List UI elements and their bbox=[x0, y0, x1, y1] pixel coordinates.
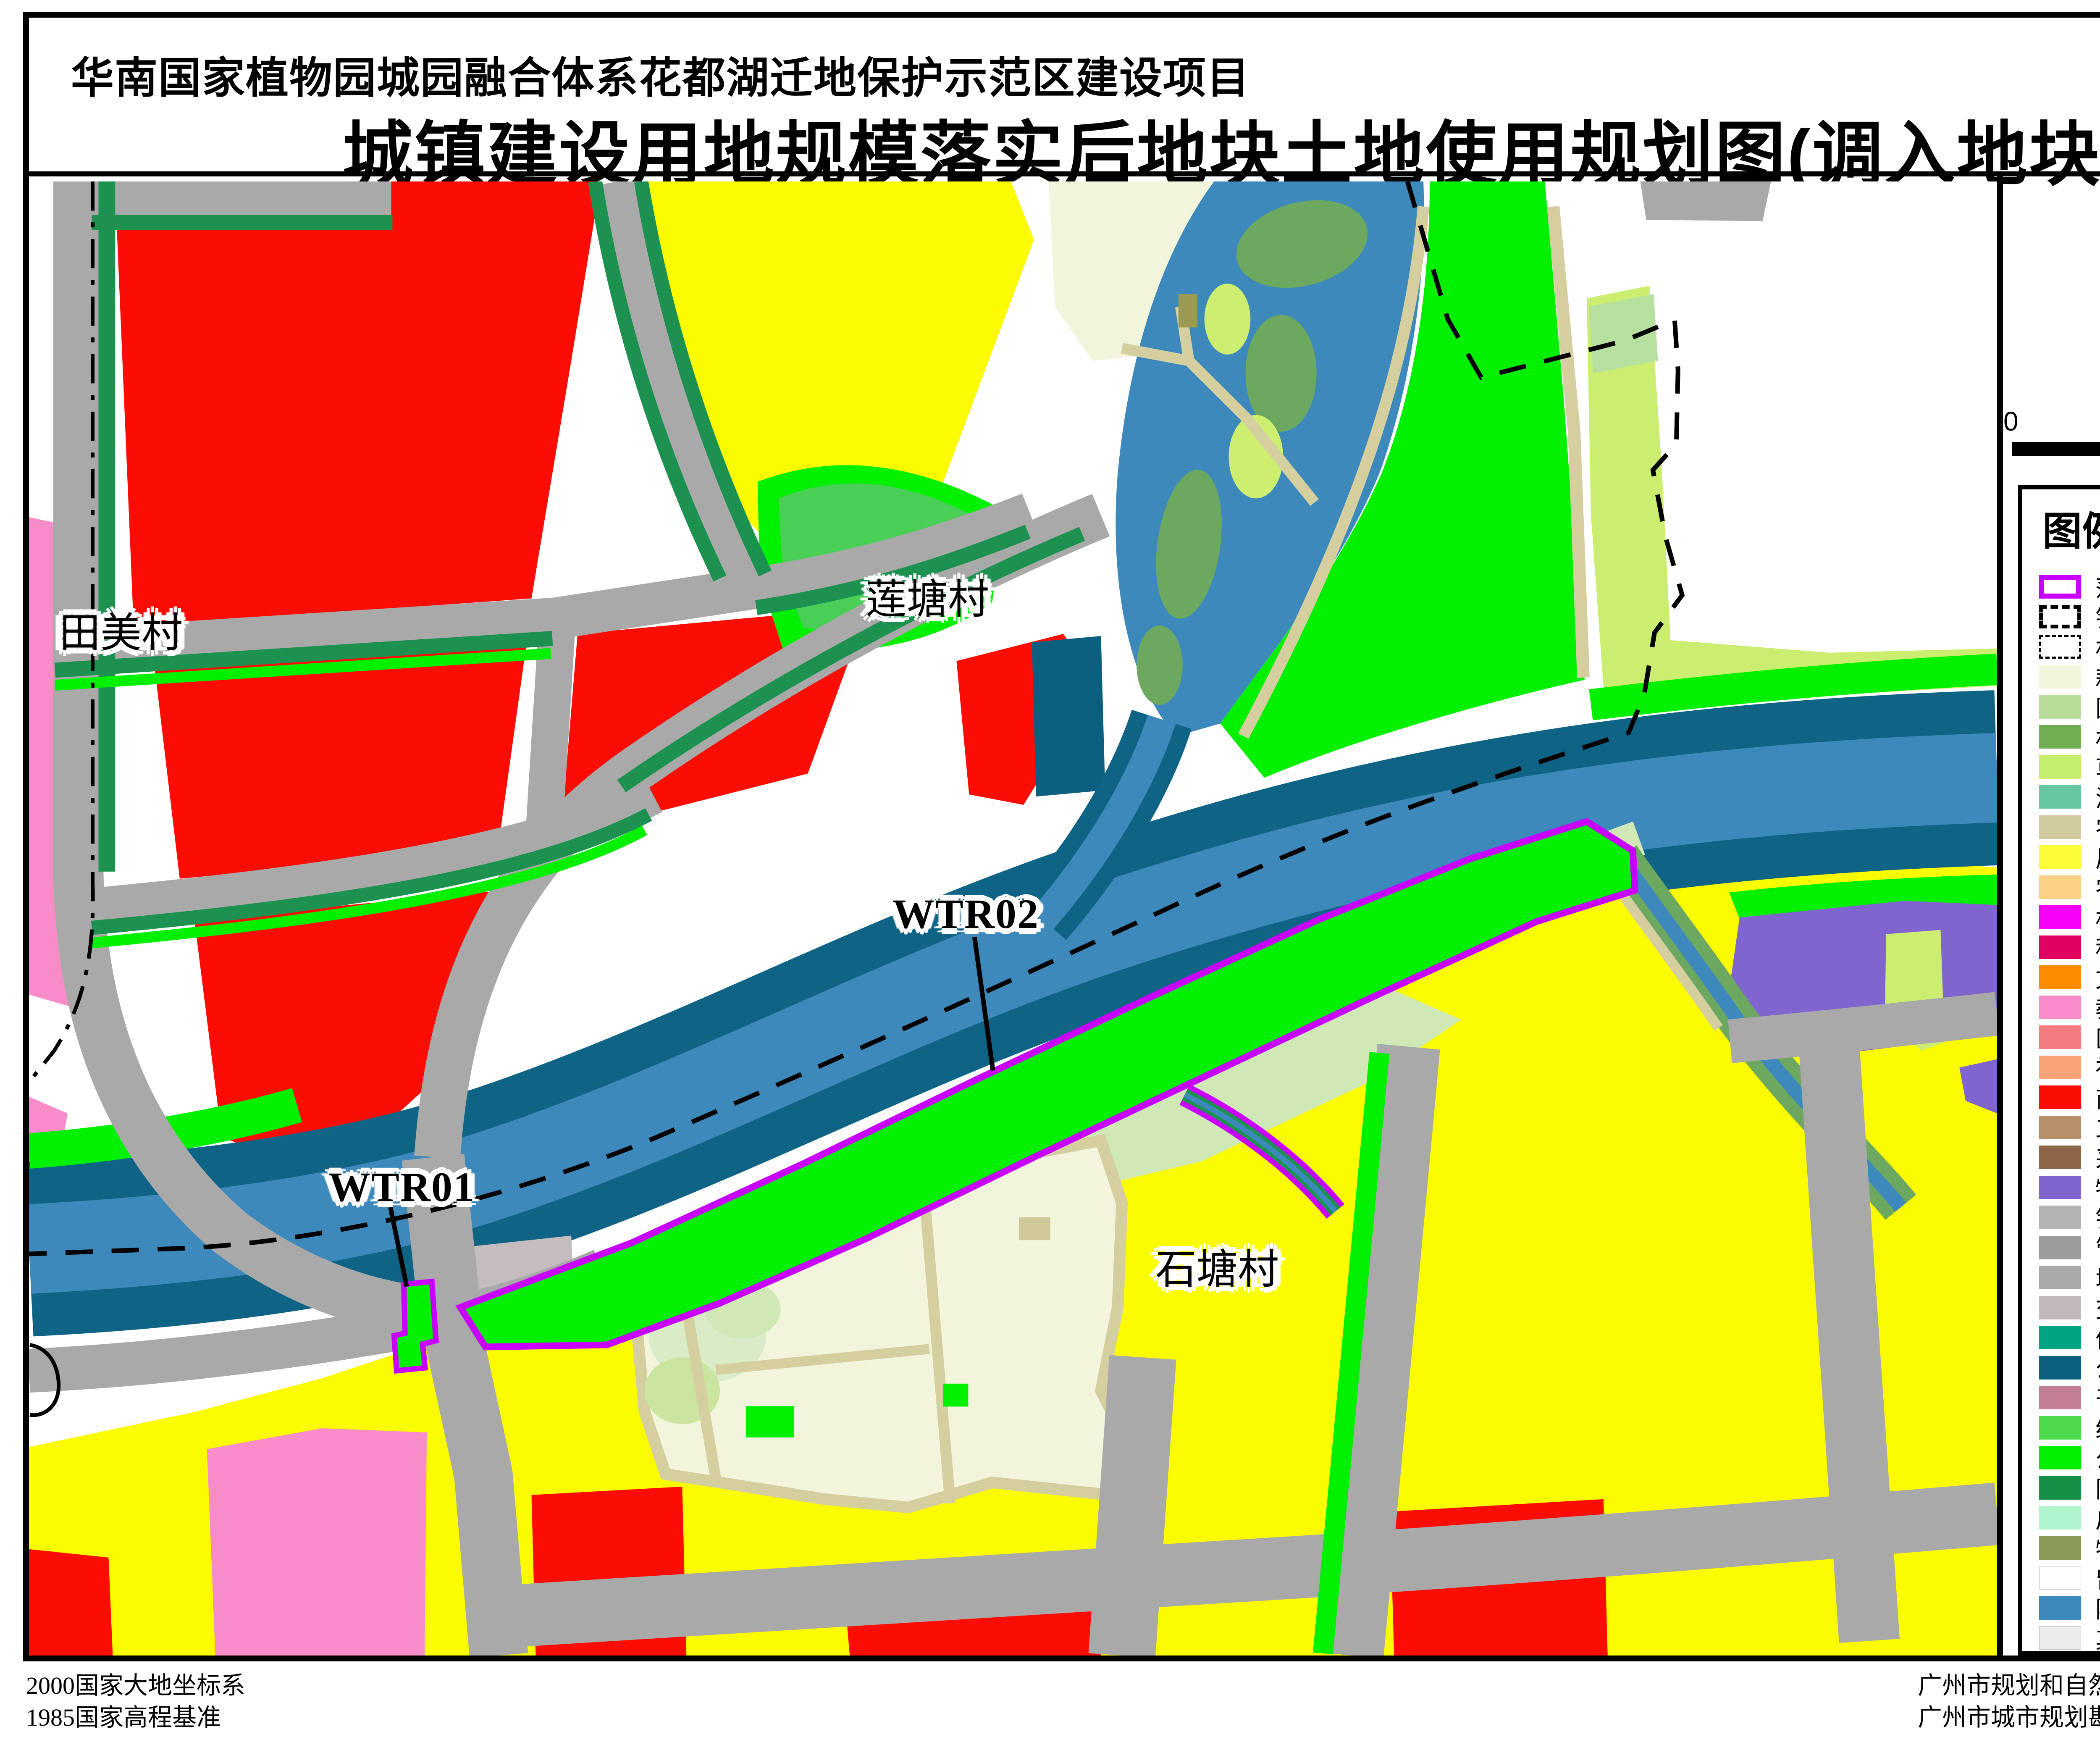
legend-swatch-fill bbox=[2039, 1266, 2081, 1289]
legend-item-label: 公用设施用地 bbox=[2095, 1351, 2100, 1385]
legend-item: 交通场站及其他交通用地 bbox=[2022, 1293, 2100, 1323]
legend-item: 文化用地 bbox=[2022, 962, 2100, 993]
legend-item-label: 文化用地 bbox=[2095, 960, 2100, 994]
legend-item-label: 特殊用地 bbox=[2095, 1531, 2100, 1565]
footer-bureau: 广州市规划和自然资源局花都区分局 bbox=[1918, 1670, 2100, 1702]
legend-item-label: 科研用地 bbox=[2095, 930, 2100, 964]
legend-swatch-fill bbox=[2039, 1356, 2081, 1380]
legend-item: 留白用地 bbox=[2022, 1563, 2100, 1593]
legend-item-label: 林地 bbox=[2095, 720, 2100, 754]
legend-item: 机关团体用地 bbox=[2022, 902, 2100, 933]
legend-item-label: 社会福利用地 bbox=[2095, 1050, 2100, 1084]
project-name: 华南国家植物园城园融合体系花都湖迁地保护示范区建设项目 bbox=[71, 44, 1250, 105]
legend-item-label: 防护绿地 bbox=[2095, 1471, 2100, 1505]
legend-item-label: 体育用地 bbox=[2095, 1321, 2100, 1355]
legend-item: 绿地与开敞空间用地 bbox=[2022, 1413, 2100, 1443]
label-liantang-village: 莲塘村 bbox=[866, 566, 989, 625]
legend-title: 图例 bbox=[2042, 499, 2100, 557]
legend-swatch-fill bbox=[2039, 845, 2081, 869]
legend-swatch-fill bbox=[2039, 1025, 2081, 1049]
legend-item: 公用设施用地 bbox=[2022, 1353, 2100, 1383]
legend-item: 农村宅基地 bbox=[2022, 872, 2100, 902]
legend-swatch-fill bbox=[2039, 1085, 2081, 1109]
legend-item: 物流仓储用地 bbox=[2022, 1172, 2100, 1203]
legend-item-label: 村界 bbox=[2095, 630, 2100, 664]
legend-item-label: 草地 bbox=[2095, 750, 2100, 784]
legend-item-label: 耕地 bbox=[2095, 660, 2100, 694]
scale-tick-0: 0 bbox=[2003, 406, 2019, 437]
legend-items: 落实地块镇界村界耕地园地林地草地湿地农业设施建设用地居住用地农村宅基地机关团体用… bbox=[2022, 572, 2100, 1653]
legend-item-label: 园地 bbox=[2095, 690, 2100, 724]
legend-swatch-dash-thin bbox=[2039, 635, 2081, 659]
legend-item-label: 陆地水域 bbox=[2095, 1591, 2100, 1625]
legend-item-label: 留白用地 bbox=[2095, 1561, 2100, 1595]
label-tianmei-village: 田美村 bbox=[59, 599, 183, 659]
legend-item: 农业设施建设用地 bbox=[2022, 812, 2100, 842]
legend-item: 工业用地 bbox=[2022, 1112, 2100, 1143]
legend-item: 湿地 bbox=[2022, 782, 2100, 812]
legend-item: 铁路、公路、机场、港口码头用地 bbox=[2022, 1203, 2100, 1233]
legend-item-label: 采矿用地 bbox=[2095, 1140, 2100, 1175]
legend-item: 草地 bbox=[2022, 752, 2100, 782]
footer-height-datum: 1985国家高程基准 bbox=[26, 1702, 245, 1734]
legend-swatch-fill bbox=[2039, 1566, 2081, 1590]
road-stub-north bbox=[1641, 181, 1771, 221]
footer-attribution: 广州市规划和自然资源局花都区分局 广州市城市规划勘测设计研究院花都分院 制图 bbox=[1918, 1670, 2100, 1734]
legend-item: 镇界 bbox=[2022, 602, 2100, 632]
legend-item-label: 城镇道路用地 bbox=[2095, 1261, 2100, 1295]
legend-swatch-fill bbox=[2039, 1116, 2081, 1139]
legend-swatch-outline bbox=[2039, 575, 2081, 599]
legend-swatch-dash-bold bbox=[2039, 605, 2081, 628]
legend-swatch-fill bbox=[2039, 1626, 2081, 1650]
legend-swatch-fill bbox=[2039, 965, 2081, 989]
legend-swatch-fill bbox=[2039, 1206, 2081, 1229]
legend-swatch-fill bbox=[2039, 725, 2081, 749]
legend-item-label: 落实地块 bbox=[2095, 570, 2100, 604]
legend-item: 林地 bbox=[2022, 722, 2100, 752]
legend-swatch-fill bbox=[2039, 1176, 2081, 1199]
legend-item-label: 广场用地 bbox=[2095, 1501, 2100, 1535]
legend-swatch-fill bbox=[2039, 905, 2081, 929]
legend-item: 陆地水域 bbox=[2022, 1593, 2100, 1623]
legend-swatch-fill bbox=[2039, 1536, 2081, 1560]
legend-swatch-fill bbox=[2039, 1506, 2081, 1529]
legend-swatch-fill bbox=[2039, 815, 2081, 839]
legend-item: 其他土地 bbox=[2022, 1623, 2100, 1653]
footer-coordinate-system: 2000国家大地坐标系 bbox=[26, 1670, 245, 1702]
legend-swatch-fill bbox=[2039, 755, 2081, 779]
legend-swatch-fill bbox=[2039, 1056, 2081, 1079]
legend-swatch-fill bbox=[2039, 1386, 2081, 1409]
legend-item: 商业服务业用地 bbox=[2022, 1083, 2100, 1113]
legend-item: 特殊用地 bbox=[2022, 1533, 2100, 1563]
legend-panel: 图例 落实地块镇界村界耕地园地林地草地湿地农业设施建设用地居住用地农村宅基地机关… bbox=[2018, 485, 2100, 1656]
legend-item: 村界 bbox=[2022, 632, 2100, 662]
legend-swatch-fill bbox=[2039, 1146, 2081, 1169]
legend-swatch-fill bbox=[2039, 1476, 2081, 1500]
title-banner: 华南国家植物园城园融合体系花都湖迁地保护示范区建设项目 城镇建设用地规模落实后地… bbox=[23, 12, 2100, 176]
label-shitang-village: 石塘村 bbox=[1155, 1236, 1279, 1296]
legend-item: 采矿用地 bbox=[2022, 1143, 2100, 1173]
legend-item-label: 其他土地 bbox=[2095, 1621, 2100, 1655]
legend-item: 教育用地 bbox=[2022, 992, 2100, 1022]
legend-item: 科研用地 bbox=[2022, 932, 2100, 962]
legend-item-label: 农村宅基地 bbox=[2095, 870, 2100, 904]
legend-item: 耕地 bbox=[2022, 662, 2100, 692]
label-wtr01: WTR01 bbox=[328, 1163, 475, 1211]
footer-institute: 广州市城市规划勘测设计研究院花都分院 制图 bbox=[1918, 1702, 2100, 1734]
legend-item-label: 管道运输用地 bbox=[2095, 1230, 2100, 1264]
legend-swatch-fill bbox=[2039, 996, 2081, 1019]
legend-swatch-fill bbox=[2039, 1236, 2081, 1259]
legend-item: 公园绿地 bbox=[2022, 1443, 2100, 1473]
legend-swatch-fill bbox=[2039, 1326, 2081, 1349]
legend-swatch-fill bbox=[2039, 1446, 2081, 1469]
legend-swatch-fill bbox=[2039, 695, 2081, 719]
legend-swatch-fill bbox=[2039, 1416, 2081, 1440]
scale-bar bbox=[2012, 442, 2100, 456]
utility-parcel bbox=[1032, 636, 1105, 796]
legend-item-label: 绿地与开敞空间用地 bbox=[2095, 1411, 2100, 1445]
legend-item-label: 工业用地 bbox=[2095, 1110, 2100, 1144]
legend-item: 社会福利用地 bbox=[2022, 1052, 2100, 1083]
legend-item-label: 干渠 bbox=[2095, 1381, 2100, 1415]
scale-seg bbox=[2013, 444, 2100, 455]
footer-datum: 2000国家大地坐标系 1985国家高程基准 bbox=[26, 1670, 245, 1734]
legend-item-label: 镇界 bbox=[2095, 600, 2100, 634]
legend-item: 广场用地 bbox=[2022, 1503, 2100, 1533]
legend-item: 干渠 bbox=[2022, 1383, 2100, 1413]
map-legend-divider bbox=[1997, 176, 2003, 1661]
legend-item: 居住用地 bbox=[2022, 842, 2100, 872]
label-wtr02: WTR02 bbox=[892, 890, 1039, 938]
legend-item-label: 交通场站及其他交通用地 bbox=[2095, 1290, 2100, 1324]
legend-item: 防护绿地 bbox=[2022, 1473, 2100, 1503]
legend-item-label: 公园绿地 bbox=[2095, 1441, 2100, 1475]
legend-swatch-fill bbox=[2039, 1596, 2081, 1620]
legend-item: 落实地块 bbox=[2022, 572, 2100, 602]
legend-item-label: 湿地 bbox=[2095, 780, 2100, 814]
legend-item: 城镇道路用地 bbox=[2022, 1263, 2100, 1293]
legend-item: 管道运输用地 bbox=[2022, 1232, 2100, 1263]
legend-item-label: 教育用地 bbox=[2095, 990, 2100, 1024]
legend-item-label: 物流仓储用地 bbox=[2095, 1170, 2100, 1204]
legend-swatch-fill bbox=[2039, 875, 2081, 899]
legend-item-label: 农业设施建设用地 bbox=[2095, 810, 2100, 844]
legend-item-label: 居住用地 bbox=[2095, 840, 2100, 874]
legend-item: 体育用地 bbox=[2022, 1323, 2100, 1353]
legend-swatch-fill bbox=[2039, 936, 2081, 959]
legend-item-label: 医疗卫生用地 bbox=[2095, 1020, 2100, 1054]
legend-item: 园地 bbox=[2022, 692, 2100, 722]
legend-swatch-fill bbox=[2039, 665, 2081, 688]
legend-item-label: 铁路、公路、机场、港口码头用地 bbox=[2095, 1201, 2100, 1235]
legend-swatch-fill bbox=[2039, 785, 2081, 809]
legend-item-label: 商业服务业用地 bbox=[2095, 1080, 2100, 1114]
legend-swatch-fill bbox=[2039, 1296, 2081, 1319]
legend-item: 医疗卫生用地 bbox=[2022, 1022, 2100, 1053]
legend-item-label: 机关团体用地 bbox=[2095, 900, 2100, 934]
